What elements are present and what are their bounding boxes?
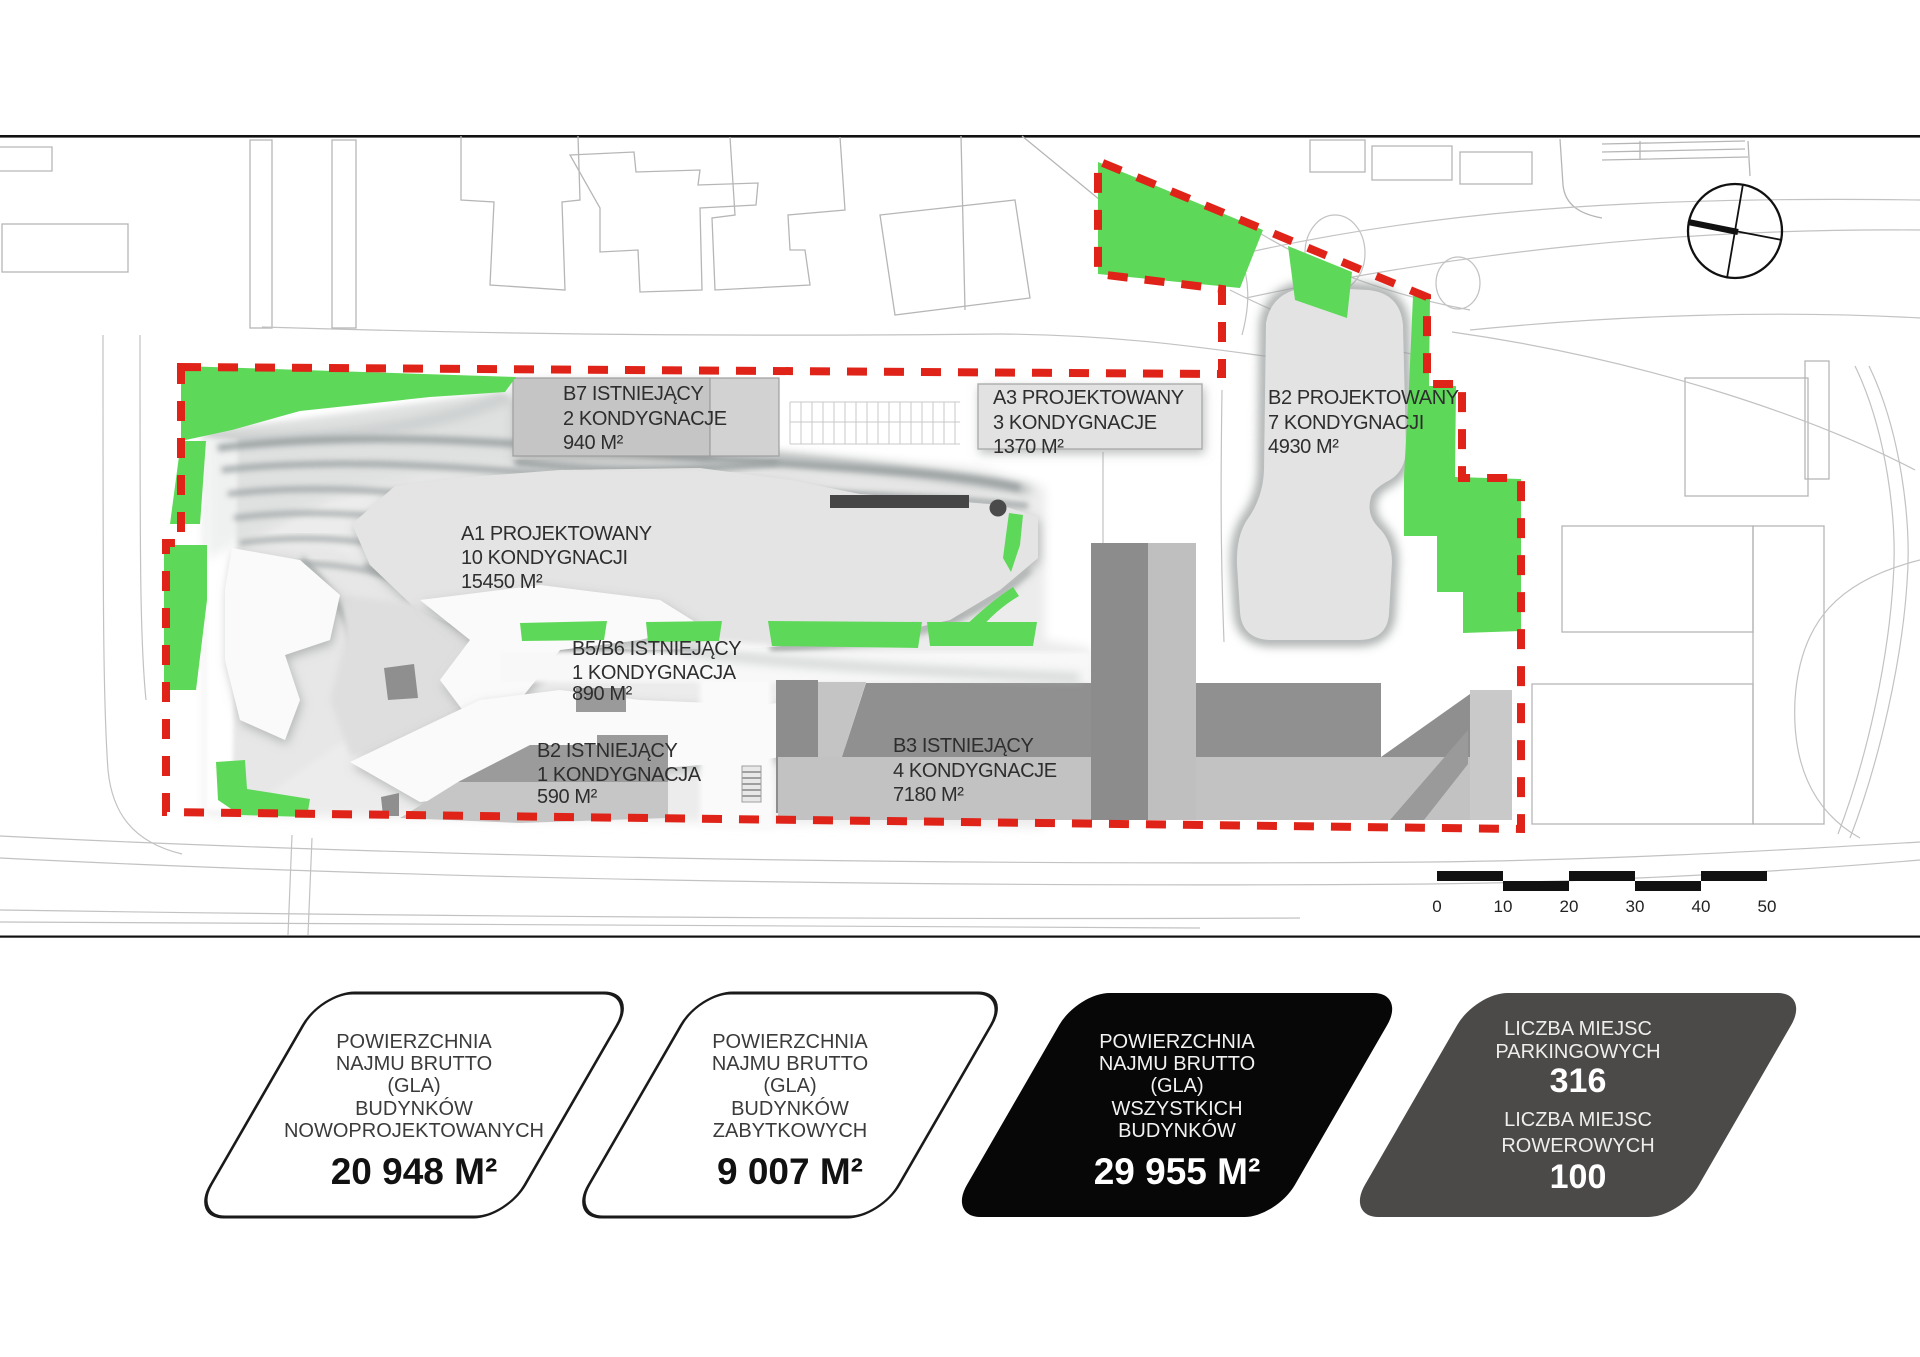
svg-text:POWIERZCHNIA: POWIERZCHNIA (1099, 1031, 1255, 1053)
svg-text:WSZYSTKICH: WSZYSTKICH (1111, 1098, 1242, 1120)
svg-text:(GLA): (GLA) (763, 1075, 816, 1097)
svg-text:4930 M²: 4930 M² (1268, 436, 1339, 458)
svg-text:940 M²: 940 M² (563, 432, 624, 454)
svg-text:9 007 M²: 9 007 M² (717, 1151, 863, 1192)
svg-text:3 KONDYGNACJE: 3 KONDYGNACJE (993, 412, 1157, 434)
svg-text:890 M²: 890 M² (572, 683, 633, 705)
svg-text:10 KONDYGNACJI: 10 KONDYGNACJI (461, 547, 628, 569)
svg-text:LICZBA MIEJSC: LICZBA MIEJSC (1504, 1018, 1652, 1040)
svg-text:A1 PROJEKTOWANY: A1 PROJEKTOWANY (461, 523, 652, 545)
svg-text:20: 20 (1560, 897, 1579, 916)
svg-text:B7 ISTNIEJĄCY: B7 ISTNIEJĄCY (563, 383, 703, 405)
svg-text:ROWEROWYCH: ROWEROWYCH (1501, 1135, 1654, 1157)
svg-text:50: 50 (1758, 897, 1777, 916)
svg-text:BUDYNKÓW: BUDYNKÓW (1118, 1119, 1236, 1142)
svg-text:1370 M²: 1370 M² (993, 436, 1064, 458)
svg-text:NAJMU BRUTTO: NAJMU BRUTTO (712, 1053, 868, 1075)
svg-text:316: 316 (1550, 1062, 1607, 1100)
svg-text:NAJMU BRUTTO: NAJMU BRUTTO (336, 1053, 492, 1075)
svg-text:B3 ISTNIEJĄCY: B3 ISTNIEJĄCY (893, 735, 1033, 757)
svg-text:4 KONDYGNACJE: 4 KONDYGNACJE (893, 760, 1057, 782)
svg-text:B5/B6 ISTNIEJĄCY: B5/B6 ISTNIEJĄCY (572, 638, 741, 660)
svg-text:29 955 M²: 29 955 M² (1094, 1151, 1261, 1192)
svg-text:20 948 M²: 20 948 M² (331, 1151, 498, 1192)
svg-text:BUDYNKÓW: BUDYNKÓW (731, 1097, 849, 1120)
svg-text:NAJMU BRUTTO: NAJMU BRUTTO (1099, 1053, 1255, 1075)
svg-text:590 M²: 590 M² (537, 786, 598, 808)
svg-text:ZABYTKOWYCH: ZABYTKOWYCH (713, 1120, 867, 1142)
svg-text:7180 M²: 7180 M² (893, 784, 964, 806)
svg-text:(GLA): (GLA) (1150, 1075, 1203, 1097)
svg-text:10: 10 (1494, 897, 1513, 916)
svg-text:0: 0 (1432, 897, 1441, 916)
svg-text:NOWOPROJEKTOWANYCH: NOWOPROJEKTOWANYCH (284, 1120, 544, 1142)
svg-text:1 KONDYGNACJA: 1 KONDYGNACJA (572, 662, 737, 684)
svg-text:2 KONDYGNACJE: 2 KONDYGNACJE (563, 408, 727, 430)
svg-text:B2 ISTNIEJĄCY: B2 ISTNIEJĄCY (537, 740, 677, 762)
svg-text:(GLA): (GLA) (387, 1075, 440, 1097)
svg-text:BUDYNKÓW: BUDYNKÓW (355, 1097, 473, 1120)
svg-text:LICZBA MIEJSC: LICZBA MIEJSC (1504, 1109, 1652, 1131)
svg-text:A3 PROJEKTOWANY: A3 PROJEKTOWANY (993, 387, 1184, 409)
svg-text:POWIERZCHNIA: POWIERZCHNIA (712, 1031, 868, 1053)
svg-text:B2 PROJEKTOWANY: B2 PROJEKTOWANY (1268, 387, 1459, 409)
svg-text:100: 100 (1550, 1158, 1607, 1196)
svg-text:15450 M²: 15450 M² (461, 571, 543, 593)
svg-text:PARKINGOWYCH: PARKINGOWYCH (1495, 1041, 1660, 1063)
svg-text:30: 30 (1626, 897, 1645, 916)
svg-text:7 KONDYGNACJI: 7 KONDYGNACJI (1268, 412, 1424, 434)
svg-text:POWIERZCHNIA: POWIERZCHNIA (336, 1031, 492, 1053)
svg-text:1 KONDYGNACJA: 1 KONDYGNACJA (537, 764, 702, 786)
svg-text:40: 40 (1692, 897, 1711, 916)
